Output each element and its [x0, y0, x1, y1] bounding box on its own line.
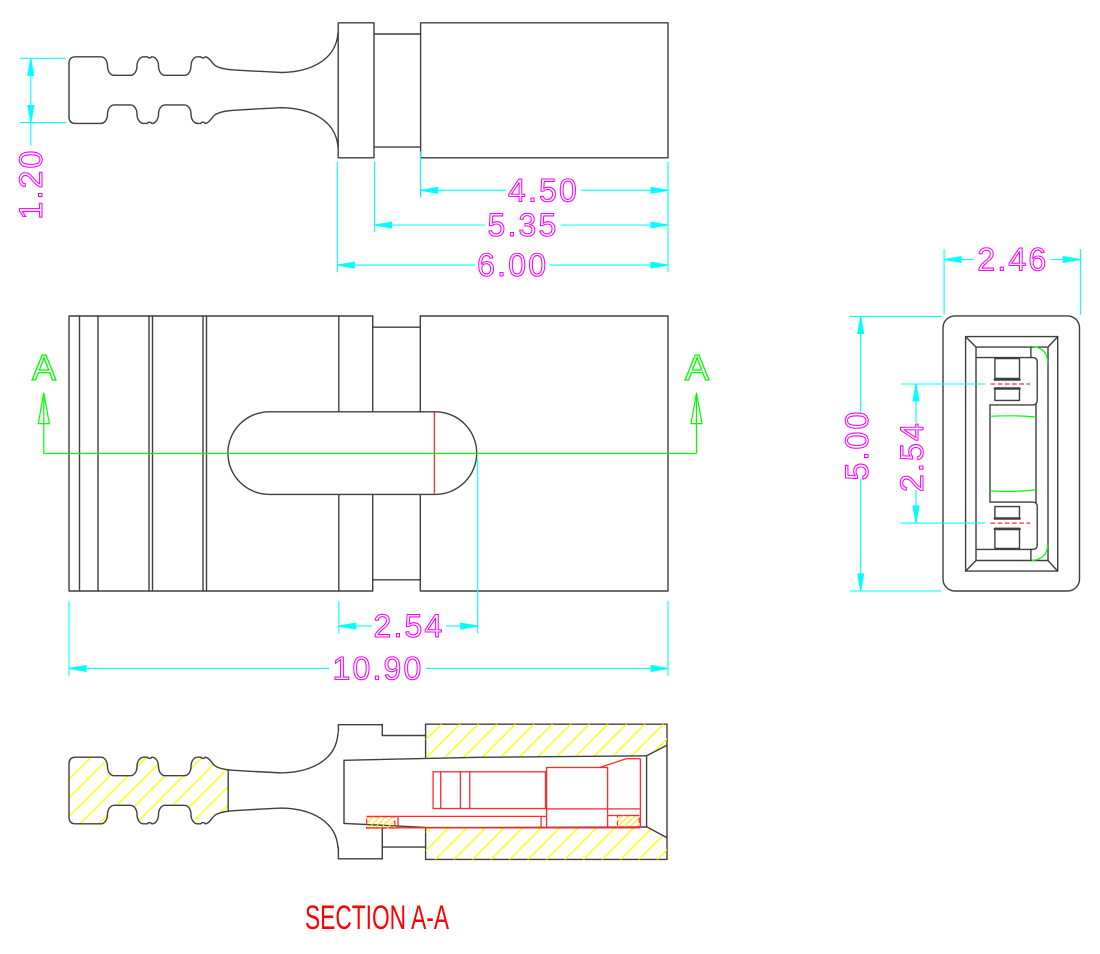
svg-text:SECTION A-A: SECTION A-A: [305, 899, 449, 937]
svg-text:1.20: 1.20: [13, 148, 49, 219]
svg-text:A: A: [685, 347, 709, 388]
svg-text:4.50: 4.50: [508, 172, 579, 208]
svg-text:A: A: [32, 347, 56, 388]
svg-text:2.46: 2.46: [977, 242, 1048, 278]
svg-text:6.00: 6.00: [477, 247, 548, 283]
svg-text:2.54: 2.54: [894, 421, 930, 492]
svg-text:2.54: 2.54: [373, 608, 444, 644]
svg-text:5.35: 5.35: [487, 207, 558, 243]
svg-text:10.90: 10.90: [332, 650, 423, 686]
svg-text:5.00: 5.00: [839, 409, 875, 480]
